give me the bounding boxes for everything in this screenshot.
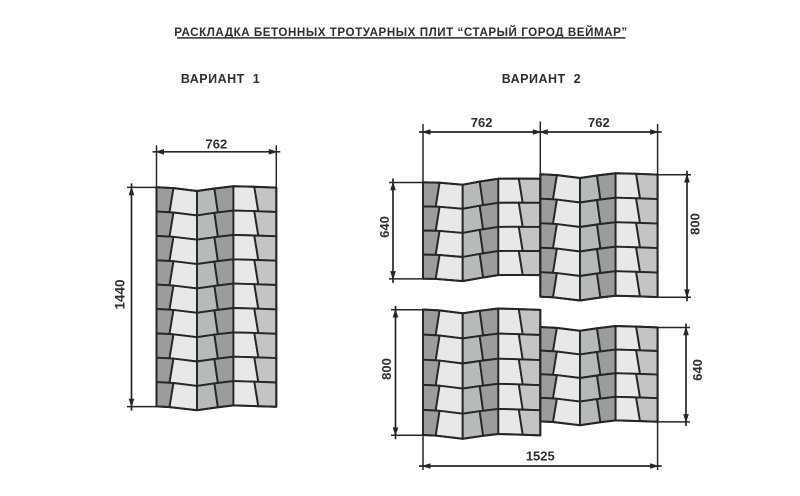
svg-text:ВАРИАНТ 2: ВАРИАНТ 2 xyxy=(502,72,581,86)
svg-text:1525: 1525 xyxy=(526,449,555,464)
svg-text:РАСКЛАДКА БЕТОННЫХ ТРОТУАРНЫХ: РАСКЛАДКА БЕТОННЫХ ТРОТУАРНЫХ ПЛИТ “СТАР… xyxy=(174,26,627,39)
svg-text:762: 762 xyxy=(206,136,228,151)
svg-text:800: 800 xyxy=(688,213,703,235)
svg-text:762: 762 xyxy=(471,115,493,130)
svg-text:762: 762 xyxy=(588,115,610,130)
svg-text:640: 640 xyxy=(377,216,392,238)
svg-text:640: 640 xyxy=(690,359,705,381)
svg-text:ВАРИАНТ 1: ВАРИАНТ 1 xyxy=(181,72,260,86)
svg-text:800: 800 xyxy=(379,358,394,380)
svg-text:1440: 1440 xyxy=(113,279,128,309)
